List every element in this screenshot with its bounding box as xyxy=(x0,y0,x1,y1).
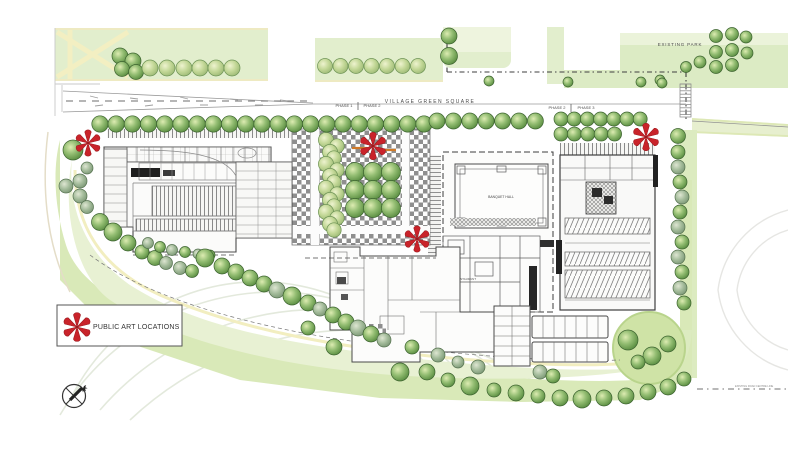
svg-text:PHASE 1: PHASE 1 xyxy=(336,103,354,108)
svg-text:PHASE 3: PHASE 3 xyxy=(578,105,596,110)
svg-text:PHASE 2: PHASE 2 xyxy=(549,105,567,110)
svg-text:PHASE 2: PHASE 2 xyxy=(364,103,382,108)
svg-text:BANQUET HALL: BANQUET HALL xyxy=(488,195,514,199)
svg-text:PUBLIC ART LOCATIONS: PUBLIC ART LOCATIONS xyxy=(93,324,180,331)
svg-text:VILLAGE GREEN SQUARE: VILLAGE GREEN SQUARE xyxy=(385,99,476,105)
svg-text:EXISTING ROAD CENTRE LINE: EXISTING ROAD CENTRE LINE xyxy=(735,384,773,388)
svg-text:EXISTING PARK: EXISTING PARK xyxy=(658,42,703,47)
